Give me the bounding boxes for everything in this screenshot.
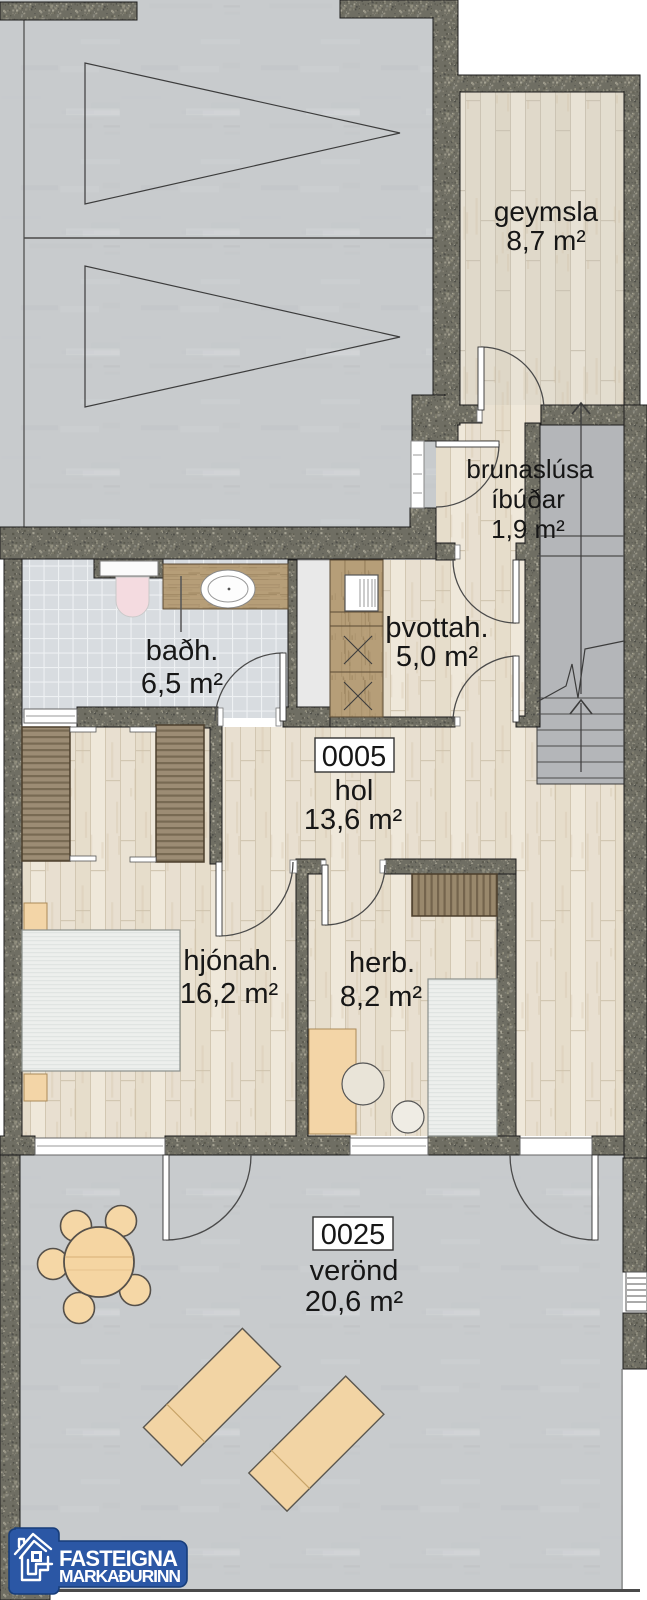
- svg-text:brunaslúsa: brunaslúsa: [466, 454, 594, 484]
- svg-text:8,7 m²: 8,7 m²: [506, 225, 585, 256]
- svg-text:13,6 m²: 13,6 m²: [304, 804, 403, 836]
- svg-text:herb.: herb.: [349, 947, 415, 979]
- svg-text:20,6 m²: 20,6 m²: [305, 1286, 404, 1318]
- svg-text:5,0 m²: 5,0 m²: [396, 641, 479, 673]
- svg-text:1,9 m²: 1,9 m²: [491, 514, 565, 544]
- svg-text:hol: hol: [335, 775, 374, 807]
- svg-text:0005: 0005: [322, 741, 387, 773]
- svg-text:baðh.: baðh.: [146, 635, 219, 667]
- svg-text:0025: 0025: [321, 1219, 386, 1251]
- svg-text:hjónah.: hjónah.: [183, 945, 278, 977]
- svg-text:MARKAÐURINN: MARKAÐURINN: [59, 1566, 181, 1586]
- svg-text:geymsla: geymsla: [494, 196, 599, 227]
- svg-text:þvottah.: þvottah.: [385, 612, 488, 644]
- svg-text:8,2 m²: 8,2 m²: [340, 981, 423, 1013]
- svg-text:6,5 m²: 6,5 m²: [141, 668, 224, 700]
- svg-text:verönd: verönd: [310, 1255, 399, 1287]
- svg-text:16,2 m²: 16,2 m²: [180, 978, 279, 1010]
- svg-text:íbúðar: íbúðar: [491, 484, 565, 514]
